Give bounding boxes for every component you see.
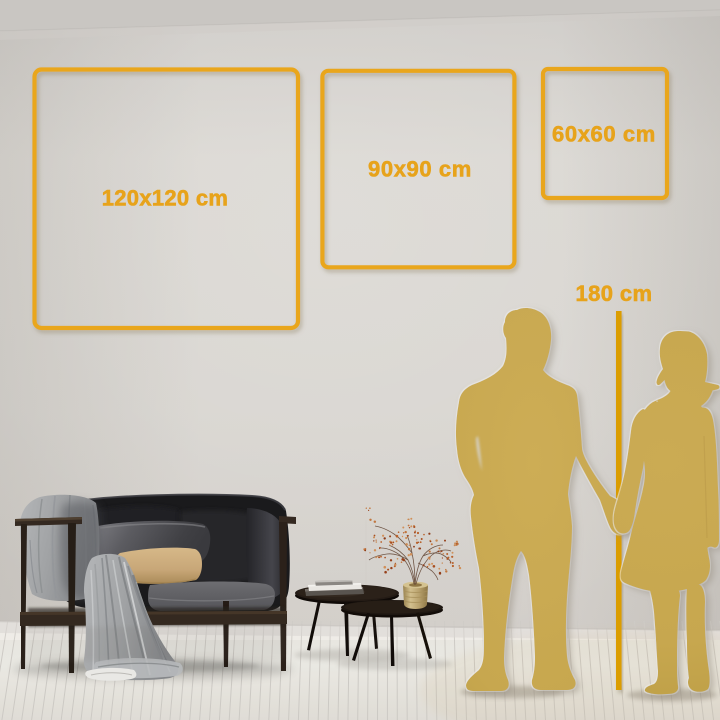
svg-text:90x90 cm: 90x90 cm bbox=[368, 157, 472, 182]
svg-text:60x60 cm: 60x60 cm bbox=[552, 122, 656, 147]
svg-text:120x120 cm: 120x120 cm bbox=[102, 186, 229, 211]
svg-text:180 cm: 180 cm bbox=[575, 281, 652, 306]
